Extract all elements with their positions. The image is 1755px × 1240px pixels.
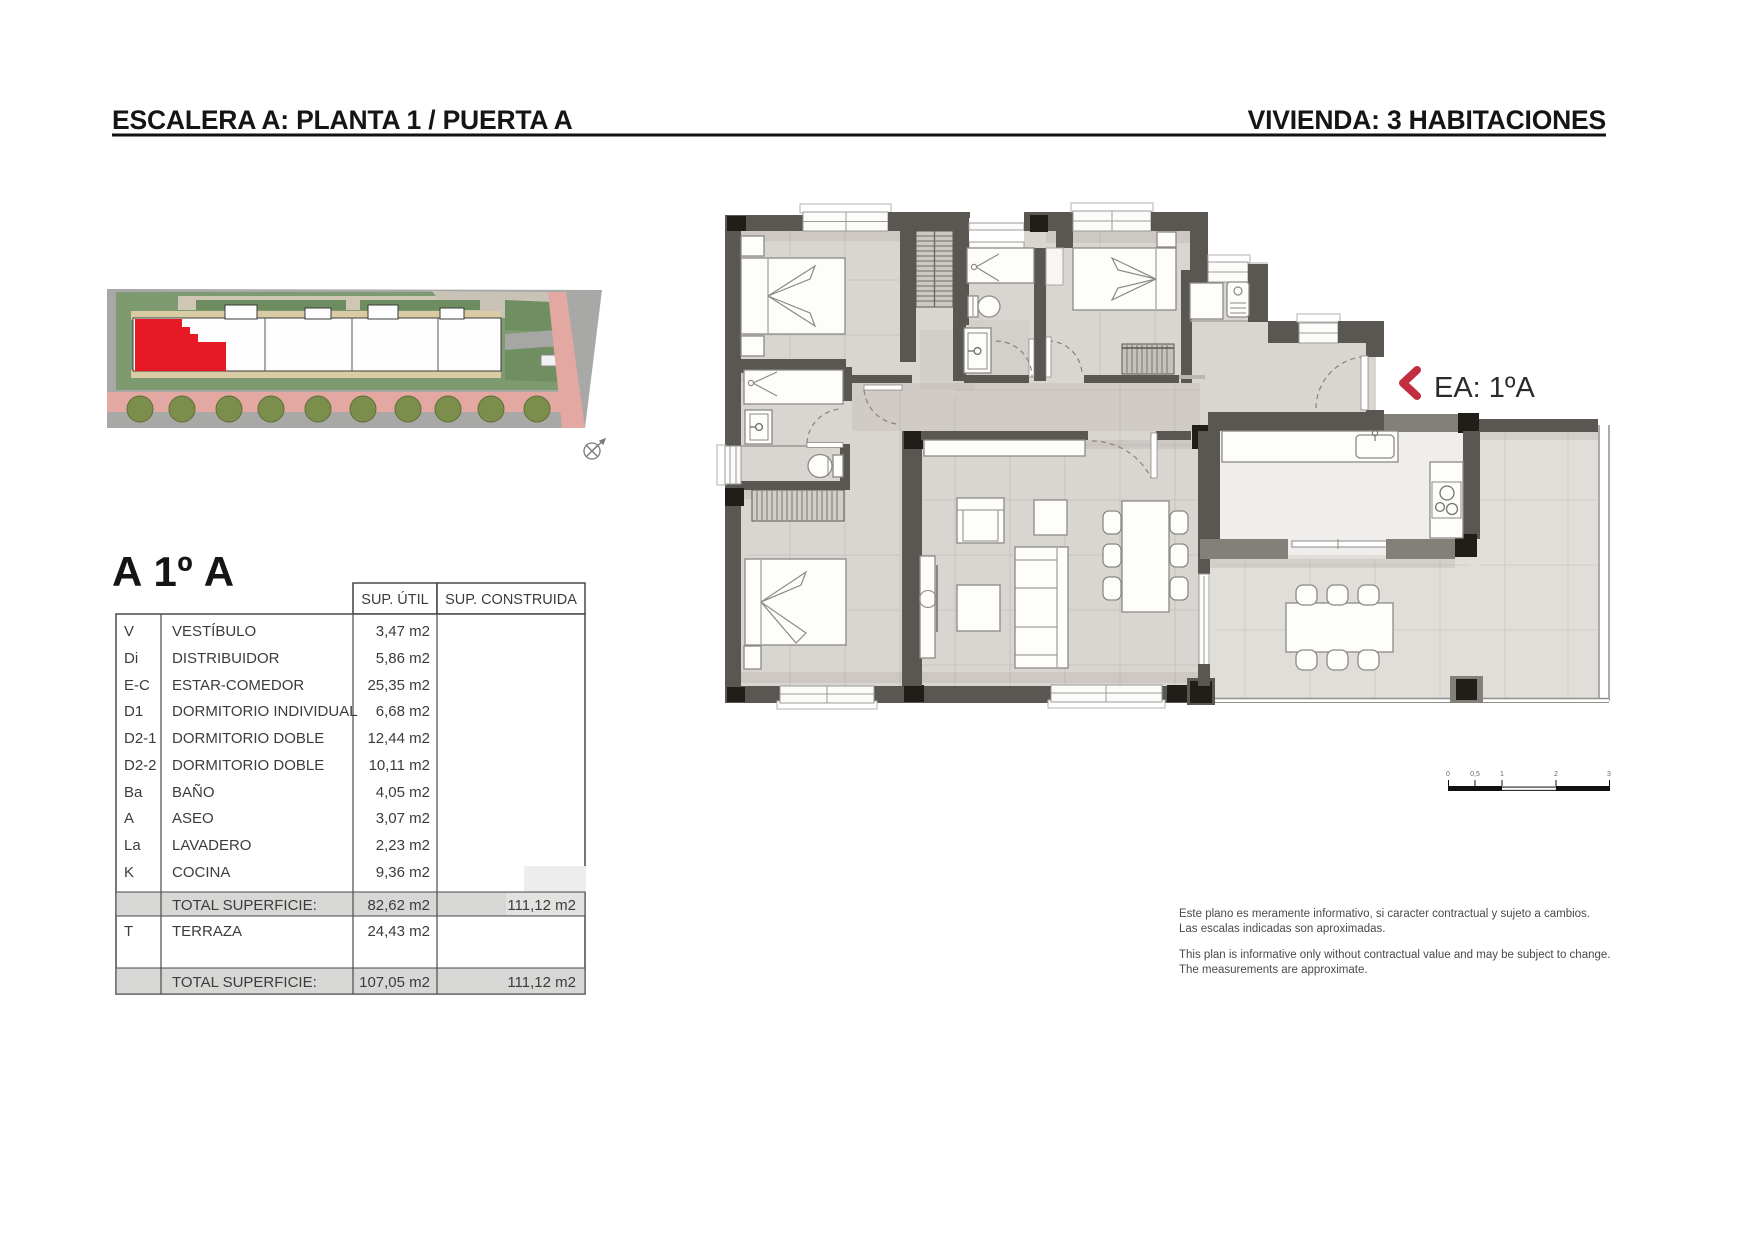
svg-text:3: 3 — [1607, 771, 1611, 778]
svg-text:107,05 m2: 107,05 m2 — [359, 974, 430, 991]
svg-text:Las escalas indicadas son apro: Las escalas indicadas son aproximadas. — [1179, 923, 1385, 935]
svg-text:DISTRIBUIDOR: DISTRIBUIDOR — [172, 650, 280, 667]
svg-text:The measurements are approxima: The measurements are approximate. — [1179, 964, 1368, 976]
svg-text:A: A — [124, 810, 134, 827]
svg-text:D2-2: D2-2 — [124, 757, 157, 774]
svg-text:D1: D1 — [124, 703, 143, 720]
svg-text:Di: Di — [124, 650, 138, 667]
svg-text:A 1º A: A 1º A — [112, 548, 235, 595]
svg-text:1: 1 — [1500, 771, 1504, 778]
svg-text:DORMITORIO INDIVIDUAL: DORMITORIO INDIVIDUAL — [172, 703, 358, 720]
svg-text:ESTAR-COMEDOR: ESTAR-COMEDOR — [172, 677, 304, 694]
svg-text:COCINA: COCINA — [172, 864, 230, 881]
svg-text:9,36 m2: 9,36 m2 — [376, 864, 430, 881]
svg-text:10,11 m2: 10,11 m2 — [369, 757, 430, 774]
svg-text:TOTAL SUPERFICIE:: TOTAL SUPERFICIE: — [172, 974, 317, 991]
svg-text:6,68 m2: 6,68 m2 — [376, 703, 430, 720]
svg-text:TERRAZA: TERRAZA — [172, 923, 242, 940]
svg-text:111,12 m2: 111,12 m2 — [507, 897, 576, 914]
svg-text:EA: 1ºA: EA: 1ºA — [1434, 372, 1536, 404]
svg-text:E-C: E-C — [124, 677, 150, 694]
svg-text:BAÑO: BAÑO — [172, 784, 215, 801]
svg-text:V: V — [124, 623, 134, 640]
svg-text:12,44 m2: 12,44 m2 — [367, 730, 430, 747]
svg-text:SUP. CONSTRUIDA: SUP. CONSTRUIDA — [445, 592, 577, 608]
svg-text:4,05 m2: 4,05 m2 — [376, 784, 430, 801]
svg-text:DORMITORIO DOBLE: DORMITORIO DOBLE — [172, 757, 324, 774]
svg-text:VESTÍBULO: VESTÍBULO — [172, 623, 256, 640]
svg-text:SUP. ÚTIL: SUP. ÚTIL — [361, 591, 428, 608]
svg-text:0,5: 0,5 — [1470, 771, 1480, 778]
svg-text:25,35 m2: 25,35 m2 — [367, 677, 430, 694]
svg-text:K: K — [124, 864, 134, 881]
svg-text:VIVIENDA: 3 HABITACIONES: VIVIENDA: 3 HABITACIONES — [1248, 105, 1606, 135]
svg-text:82,62 m2: 82,62 m2 — [367, 897, 430, 914]
svg-text:5,86 m2: 5,86 m2 — [376, 650, 430, 667]
svg-text:This plan is informative only: This plan is informative only without co… — [1179, 949, 1611, 961]
svg-text:2: 2 — [1554, 771, 1558, 778]
svg-text:0: 0 — [1446, 771, 1450, 778]
svg-text:Ba: Ba — [124, 784, 143, 801]
svg-text:24,43 m2: 24,43 m2 — [367, 923, 430, 940]
svg-text:La: La — [124, 837, 141, 854]
svg-text:ASEO: ASEO — [172, 810, 214, 827]
svg-text:3,07 m2: 3,07 m2 — [376, 810, 430, 827]
svg-text:LAVADERO: LAVADERO — [172, 837, 251, 854]
svg-text:ESCALERA A: PLANTA 1 / PUERTA: ESCALERA A: PLANTA 1 / PUERTA A — [112, 105, 573, 135]
svg-text:3,47 m2: 3,47 m2 — [376, 623, 430, 640]
svg-text:D2-1: D2-1 — [124, 730, 157, 747]
svg-text:TOTAL SUPERFICIE:: TOTAL SUPERFICIE: — [172, 897, 317, 914]
svg-text:Este plano es meramente inform: Este plano es meramente informativo, si … — [1179, 908, 1590, 920]
svg-text:DORMITORIO DOBLE: DORMITORIO DOBLE — [172, 730, 324, 747]
svg-text:111,12 m2: 111,12 m2 — [507, 974, 576, 991]
svg-text:T: T — [124, 923, 133, 940]
svg-text:2,23 m2: 2,23 m2 — [376, 837, 430, 854]
